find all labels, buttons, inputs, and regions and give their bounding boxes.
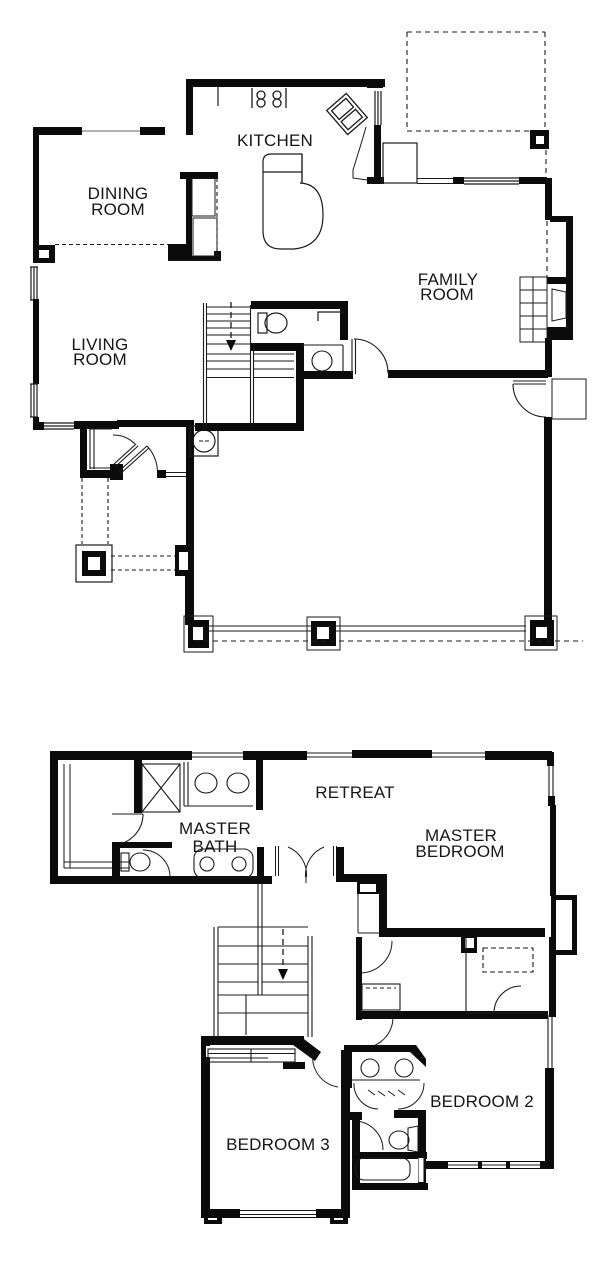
svg-text:BEDROOM 3: BEDROOM 3 [226, 1135, 330, 1154]
svg-text:BEDROOM 2: BEDROOM 2 [430, 1092, 534, 1111]
svg-text:RETREAT: RETREAT [315, 783, 394, 802]
svg-text:BATH: BATH [193, 837, 238, 856]
svg-text:KITCHEN: KITCHEN [237, 131, 313, 150]
svg-text:MASTER: MASTER [179, 819, 251, 838]
svg-text:ROOM: ROOM [91, 200, 145, 219]
svg-text:BEDROOM: BEDROOM [415, 842, 504, 861]
svg-text:ROOM: ROOM [420, 285, 474, 304]
svg-text:ROOM: ROOM [73, 350, 127, 369]
